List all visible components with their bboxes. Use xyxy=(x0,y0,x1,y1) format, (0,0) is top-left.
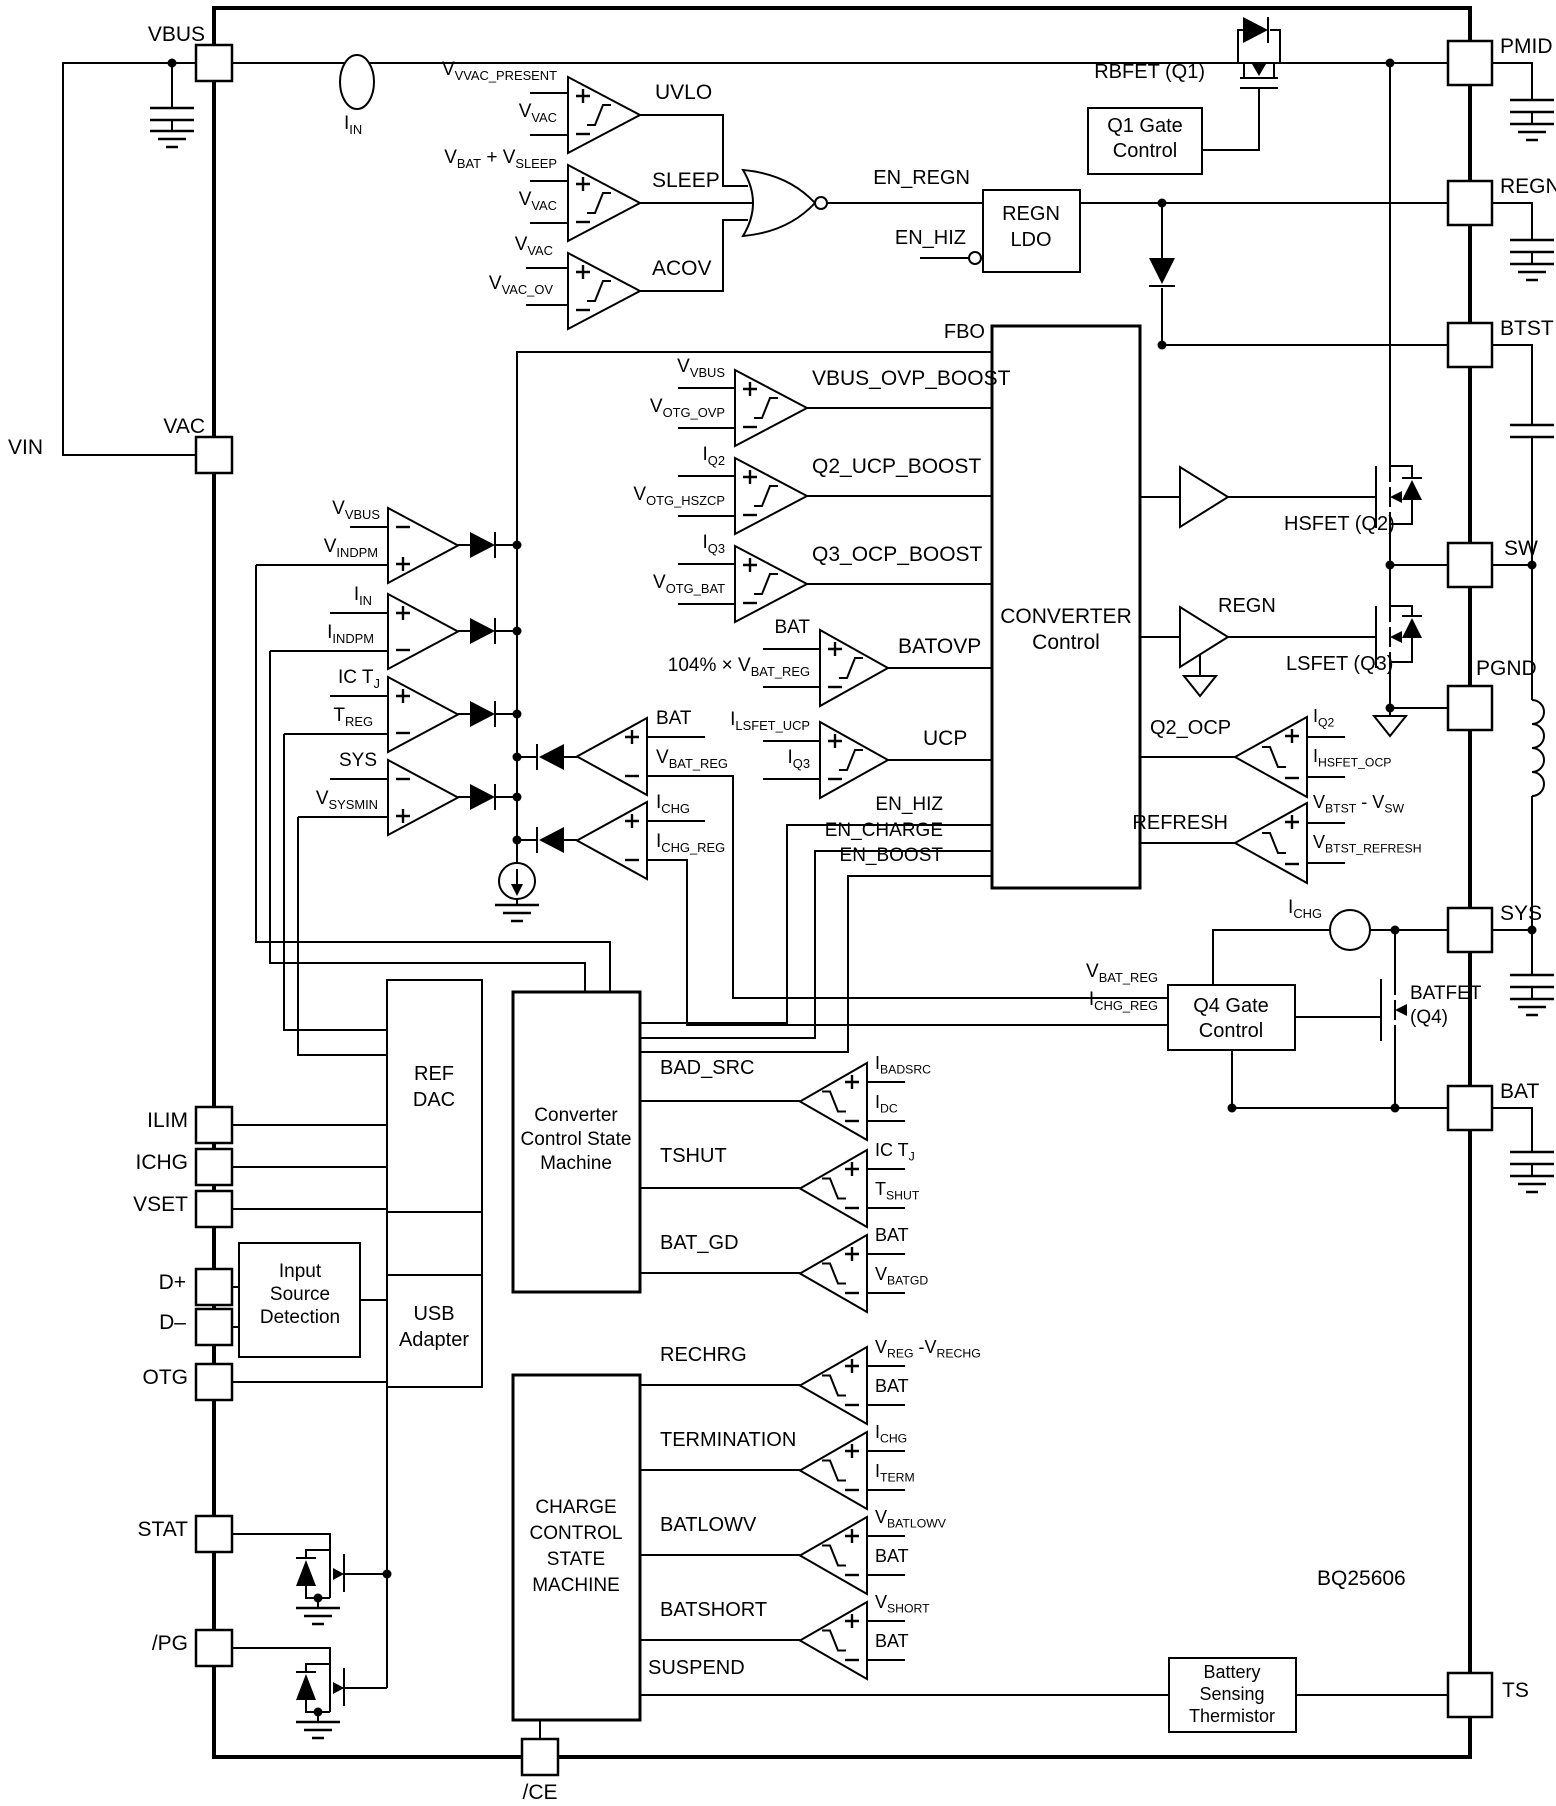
wire xyxy=(1492,203,1532,240)
pin-right-ts xyxy=(1448,1673,1492,1717)
ground-icon xyxy=(296,1608,340,1624)
junction-dot xyxy=(1228,1104,1237,1113)
label-comparators-acov-m: VVAC_OV xyxy=(489,274,553,296)
label-comparators-refresh-out: REFRESH xyxy=(1132,813,1228,834)
comp-vbus-ovp-boost xyxy=(735,370,807,446)
pin-right-regn xyxy=(1448,181,1492,225)
capacitor xyxy=(1510,425,1554,437)
ground-icon xyxy=(1510,999,1554,1015)
label-signals-ichgreg_in: ICHG_REG xyxy=(1089,990,1158,1012)
label-comparators-rechrg-p: VREG -VRECHG xyxy=(875,1338,981,1360)
label-comparators-tshut-p: IC TJ xyxy=(875,1141,915,1163)
label-amps-ichgreg-m: ICHG_REG xyxy=(656,832,725,854)
label-blocks-regn_ldo-l2: LDO xyxy=(1010,230,1051,251)
pin-left-d xyxy=(196,1269,232,1305)
wire xyxy=(1532,700,1544,796)
label-comparators-batshort-out: BATSHORT xyxy=(660,1600,767,1621)
comp-refresh xyxy=(1235,803,1307,883)
lsfet-arrow xyxy=(1390,631,1402,643)
label-amps-vindpm-p: VINDPM xyxy=(324,537,378,559)
label-comparators-sleep-out: SLEEP xyxy=(652,170,720,192)
junction-dot xyxy=(1391,926,1400,935)
label-comparators-uvlo-m: VVAC xyxy=(519,102,557,124)
capacitor xyxy=(1510,240,1554,252)
label-comparators-batlowv-p: VBATLOWV xyxy=(875,1508,946,1530)
comp-uvlo xyxy=(568,77,640,153)
amp-vbatreg xyxy=(577,718,647,795)
label-signals-en_regn: EN_REGN xyxy=(873,168,970,189)
pin-left-vac xyxy=(196,437,232,473)
label-pins-left-4: VSET xyxy=(133,1194,188,1216)
label-comparators-tshut-out: TSHUT xyxy=(660,1146,727,1167)
label-amps-vbatreg-p: BAT xyxy=(656,709,692,729)
label-signals-ichg: ICHG xyxy=(1288,898,1322,920)
label-pins-left-3: ICHG xyxy=(136,1152,189,1174)
label-pins-left-8: STAT xyxy=(137,1519,188,1541)
diagram-canvas xyxy=(0,0,1556,1806)
boot-diode-icon xyxy=(1149,258,1175,284)
label-comparators-ucp-p: ILSFET_UCP xyxy=(730,710,810,732)
hsfet-body-diode-icon xyxy=(1402,480,1422,500)
label-comparators-tshut-m: TSHUT xyxy=(875,1180,919,1202)
label-comparators-bat_gd-p: BAT xyxy=(875,1226,909,1245)
label-comparators-q3_ocp-m: VOTG_BAT xyxy=(653,573,725,595)
ground-icon xyxy=(1510,1176,1554,1192)
pin-left-vset xyxy=(196,1191,232,1227)
pin-right-btst xyxy=(1448,323,1492,367)
label-comparators-batshort-p: VSHORT xyxy=(875,1593,930,1615)
label-fets-batfet_l1: BATFET xyxy=(1410,984,1481,1004)
label-pins-left-2: ILIM xyxy=(147,1110,188,1132)
label-comparators-q3_ocp-out: Q3_OCP_BOOST xyxy=(812,544,982,566)
label-signals-en_hiz-2: EN_HIZ xyxy=(875,795,943,815)
label-comparators-termination-m: ITERM xyxy=(875,1462,915,1484)
comp-q2-ocp xyxy=(1235,717,1307,797)
wire xyxy=(1492,1108,1532,1152)
amp-iindpm xyxy=(388,594,458,669)
pin-left-otg xyxy=(196,1364,232,1400)
stat-fet-arrow xyxy=(333,1568,344,1580)
capacitor xyxy=(1510,1152,1554,1164)
label-comparators-vbus_ovp-out: VBUS_OVP_BOOST xyxy=(812,368,1010,390)
comp-q3-ocp-boost xyxy=(735,546,807,622)
junction-dot xyxy=(383,1570,392,1579)
label-amps-treg-m: TREG xyxy=(333,706,373,728)
label-comparators-uvlo-out: UVLO xyxy=(655,82,712,104)
hsfet-driver-buffer xyxy=(1180,467,1228,527)
label-amps-vindpm-m: VVBUS xyxy=(332,499,380,521)
label-signals-en_boost: EN_BOOST xyxy=(840,846,943,866)
label-blocks-ref_dac-l2: DAC xyxy=(413,1090,455,1111)
label-pins-left-7: OTG xyxy=(143,1367,189,1389)
label-amps-sysmin-p: VSYSMIN xyxy=(316,789,378,811)
comp-sleep xyxy=(568,165,640,241)
wire xyxy=(1202,88,1259,150)
label-pins-right-1: REGN xyxy=(1500,176,1556,198)
junction-dot xyxy=(1528,926,1537,935)
label-amps-vbatreg-m: VBAT_REG xyxy=(656,748,728,770)
pg-fet-drain xyxy=(232,1648,330,1664)
wire xyxy=(63,63,196,455)
pin-left-ilim xyxy=(196,1107,232,1143)
ground-icon xyxy=(296,1722,340,1738)
junction-dot xyxy=(513,541,522,550)
ground-icon xyxy=(1510,124,1554,140)
label-signals-iin: IIN xyxy=(344,114,362,136)
label-blocks-q4_gate-l1: Q4 Gate xyxy=(1193,996,1269,1017)
junction-dot xyxy=(1158,199,1167,208)
label-blocks-q4_gate-l2: Control xyxy=(1199,1021,1263,1042)
label-blocks-charge_sm-l4: MACHINE xyxy=(532,1576,620,1596)
label-blocks-conv_sm-l1: Converter xyxy=(534,1106,617,1126)
label-comparators-rechrg-m: BAT xyxy=(875,1377,909,1396)
batfet-arrow xyxy=(1395,1004,1407,1016)
lsfet-body-diode-icon xyxy=(1402,618,1422,638)
label-blocks-charge_sm-l2: CONTROL xyxy=(530,1524,623,1544)
label-blocks-ref_dac-l1: REF xyxy=(414,1064,454,1085)
stat-fet-drain xyxy=(232,1534,330,1550)
label-amps-iindpm-p: IIN xyxy=(354,585,372,607)
pin-left-vbus xyxy=(196,45,232,81)
label-comparators-q2_ocp-m: IHSFET_OCP xyxy=(1313,747,1391,769)
label-signals-regn: REGN xyxy=(1218,596,1276,617)
label-comparators-batshort-m: BAT xyxy=(875,1632,909,1651)
ichg-sense-icon xyxy=(1330,910,1370,950)
pin-right-bat xyxy=(1448,1086,1492,1130)
label-comparators-batovp-p: BAT xyxy=(774,618,810,638)
pin-right-sys xyxy=(1448,908,1492,952)
ground-icon xyxy=(150,131,194,147)
label-comparators-batovp-m: 104% × VBAT_REG xyxy=(668,656,810,678)
pg-fet-diode-icon xyxy=(296,1674,316,1700)
junction-dot xyxy=(1528,561,1537,570)
label-pins-right-0: PMID xyxy=(1500,36,1553,58)
label-signals-vbatreg_in: VBAT_REG xyxy=(1086,962,1158,984)
label-pins-left-9: /PG xyxy=(152,1633,188,1655)
label-blocks-thermistor-l2: Sensing xyxy=(1199,1685,1264,1704)
pin-left-d xyxy=(196,1309,232,1345)
label-comparators-q2_ocp-out: Q2_OCP xyxy=(1150,718,1231,739)
wire xyxy=(1390,466,1412,478)
junction-dot xyxy=(168,59,177,68)
label-blocks-thermistor-l3: Thermistor xyxy=(1189,1707,1275,1726)
comp-acov xyxy=(568,253,640,329)
label-comparators-acov-out: ACOV xyxy=(652,258,712,280)
junction-dot xyxy=(513,753,522,762)
label-signals-en_charge: EN_CHARGE xyxy=(825,821,943,841)
label-blocks-regn_ldo-l1: REGN xyxy=(1002,204,1060,225)
pg-fet-arrow xyxy=(333,1682,344,1694)
diode-icon xyxy=(1243,17,1268,43)
label-comparators-bat_gd-out: BAT_GD xyxy=(660,1233,739,1254)
charge-control-state-machine-block xyxy=(513,1375,640,1720)
label-comparators-bad_src-out: BAD_SRC xyxy=(660,1058,754,1079)
pin-right-pmid xyxy=(1448,41,1492,85)
ground-triangle-icon xyxy=(1184,676,1216,696)
label-comparators-bad_src-p: IBADSRC xyxy=(875,1054,931,1076)
hsfet-arrow xyxy=(1390,491,1402,503)
junction-dot xyxy=(1386,561,1395,570)
label-amps-ichgreg-p: ICHG xyxy=(656,793,690,815)
diode-icon xyxy=(539,827,564,853)
pin-bottom-ce xyxy=(522,1739,558,1775)
wire xyxy=(1492,63,1532,100)
diode-icon xyxy=(470,784,495,810)
label-amps-sysmin-m: SYS xyxy=(339,751,377,771)
comp-batovp xyxy=(820,630,888,706)
pin-left-pg xyxy=(196,1630,232,1666)
junction-dot xyxy=(513,793,522,802)
label-comparators-sleep-p: VBAT + VSLEEP xyxy=(444,148,557,170)
label-blocks-isd-l2: Source xyxy=(270,1285,330,1305)
bq25606-block-diagram: BQ25606VINVBUSVACILIMICHGVSETD+D–OTGSTAT… xyxy=(0,0,1556,1806)
label-blocks-conv_sm-l2: Control State xyxy=(521,1130,632,1150)
label-blocks-usb-l1: USB xyxy=(413,1304,454,1325)
ground-icon xyxy=(495,905,539,921)
capacitor xyxy=(1510,975,1554,987)
label-pins-right-2: BTST xyxy=(1500,318,1554,340)
label-comparators-rechrg-out: RECHRG xyxy=(660,1345,747,1366)
junction-dot xyxy=(1391,1104,1400,1113)
label-comparators-batlowv-m: BAT xyxy=(875,1547,909,1566)
label-comparators-ucp-m: IQ3 xyxy=(788,748,811,770)
ground-triangle-icon xyxy=(1374,716,1406,736)
comp-ucp xyxy=(820,722,888,798)
label-comparators-bad_src-m: IDC xyxy=(875,1093,898,1115)
rbfet-arrow xyxy=(1252,64,1266,76)
junction-dot xyxy=(1158,341,1167,350)
label-comparators-batovp-out: BATOVP xyxy=(898,636,981,658)
iin-sense-icon xyxy=(340,55,374,109)
label-comparators-ucp-out: UCP xyxy=(923,728,967,750)
label-pins-vin: VIN xyxy=(8,437,43,459)
label-pins-right-7: TS xyxy=(1502,1680,1529,1702)
label-comparators-uvlo-p: VVVAC_PRESENT xyxy=(442,60,557,82)
stat-fet xyxy=(306,1550,330,1558)
label-comparators-q2_ucp-p: IQ2 xyxy=(703,445,726,467)
label-blocks-thermistor-l1: Battery xyxy=(1203,1663,1260,1682)
label-fets-rbfet: RBFET (Q1) xyxy=(1094,62,1205,83)
junction-dot xyxy=(1386,59,1395,68)
stat-fet-diode-icon xyxy=(296,1560,316,1586)
label-pins-right-4: PGND xyxy=(1476,658,1537,680)
label-comparators-bat_gd-m: VBATGD xyxy=(875,1265,928,1287)
label-comparators-q3_ocp-p: IQ3 xyxy=(703,533,726,555)
label-blocks-converter-l1: CONVERTER xyxy=(1000,606,1131,628)
label-comparators-q2_ucp-out: Q2_UCP_BOOST xyxy=(812,456,981,478)
label-comparators-sleep-m: VVAC xyxy=(519,190,557,212)
label-signals-suspend: SUSPEND xyxy=(648,1658,745,1679)
en-hiz-bubble xyxy=(969,252,981,264)
junction-dot xyxy=(513,627,522,636)
label-comparators-q2_ucp-m: VOTG_HSZCP xyxy=(633,485,725,507)
label-comparators-q2_ocp-p: IQ2 xyxy=(1313,707,1334,729)
label-comparators-vbus_ovp-p: VVBUS xyxy=(677,357,725,379)
wire xyxy=(1270,30,1280,63)
capacitor xyxy=(150,108,194,120)
comp-q2-ucp-boost xyxy=(735,458,807,534)
label-comparators-termination-p: ICHG xyxy=(875,1423,907,1445)
wire xyxy=(1390,606,1412,616)
label-comparators-batlowv-out: BATLOWV xyxy=(660,1515,756,1536)
label-fets-lsfet: LSFET (Q3) xyxy=(1286,654,1393,675)
label-signals-fbo: FBO xyxy=(944,322,985,343)
label-fets-batfet_l2: (Q4) xyxy=(1410,1008,1448,1028)
amp-sysmin xyxy=(388,760,458,835)
pin-left-stat xyxy=(196,1516,232,1552)
label-blocks-isd-l3: Detection xyxy=(260,1308,340,1328)
junction-dot xyxy=(513,836,522,845)
label-blocks-isd-l1: Input xyxy=(279,1262,321,1282)
diode-icon xyxy=(470,618,495,644)
amp-vindpm xyxy=(388,508,458,583)
wire xyxy=(298,817,387,1055)
label-pins-right-5: SYS xyxy=(1500,903,1542,925)
label-amps-treg-p: IC TJ xyxy=(338,668,380,690)
label-pins-right-6: BAT xyxy=(1500,1081,1539,1103)
pin-right-pgnd xyxy=(1448,686,1492,730)
label-pins-right-3: SW xyxy=(1504,538,1538,560)
label-pins-left-6: D– xyxy=(159,1312,186,1334)
pin-left-ichg xyxy=(196,1149,232,1185)
amp-ichgreg xyxy=(577,802,647,879)
nor-bubble xyxy=(815,197,827,209)
label-part-number: BQ25606 xyxy=(1317,1568,1406,1590)
label-comparators-vbus_ovp-m: VOTG_OVP xyxy=(650,397,725,419)
label-blocks-conv_sm-l3: Machine xyxy=(540,1154,612,1174)
junction-dot xyxy=(1386,704,1395,713)
wire xyxy=(1492,345,1532,425)
diode-icon xyxy=(470,532,495,558)
label-comparators-termination-out: TERMINATION xyxy=(660,1430,796,1451)
ground-icon xyxy=(1510,264,1554,280)
diode-icon xyxy=(470,701,495,727)
label-pins-left-0: VBUS xyxy=(148,24,205,46)
wire xyxy=(1238,30,1243,63)
label-pins-left-1: VAC xyxy=(163,416,205,438)
label-comparators-acov-p: VVAC xyxy=(515,235,553,257)
capacitor xyxy=(1510,100,1554,112)
label-fets-hsfet: HSFET (Q2) xyxy=(1284,514,1395,535)
pg-fet xyxy=(306,1664,330,1672)
label-signals-en_hiz: EN_HIZ xyxy=(895,228,966,249)
label-comparators-refresh-p: VBTST - VSW xyxy=(1313,793,1404,815)
label-blocks-converter-l2: Control xyxy=(1032,632,1100,654)
label-blocks-charge_sm-l3: STATE xyxy=(547,1550,605,1570)
diode-icon xyxy=(539,744,564,770)
label-blocks-charge_sm-l1: CHARGE xyxy=(535,1498,616,1518)
label-pins-bottom-0: /CE xyxy=(522,1782,557,1804)
pin-right-sw xyxy=(1448,543,1492,587)
wire xyxy=(640,220,748,291)
label-blocks-q1_gate-l1: Q1 Gate xyxy=(1107,116,1183,137)
label-blocks-usb-l2: Adapter xyxy=(399,1330,469,1351)
wire xyxy=(640,851,992,1038)
wire xyxy=(1213,930,1448,985)
junction-dot xyxy=(513,710,522,719)
nor-gate-icon xyxy=(743,170,815,236)
label-amps-iindpm-m: IINDPM xyxy=(327,623,374,645)
label-comparators-refresh-m: VBTST_REFRESH xyxy=(1313,833,1422,855)
amp-treg xyxy=(388,677,458,752)
label-pins-left-5: D+ xyxy=(159,1272,186,1294)
label-blocks-q1_gate-l2: Control xyxy=(1113,141,1177,162)
